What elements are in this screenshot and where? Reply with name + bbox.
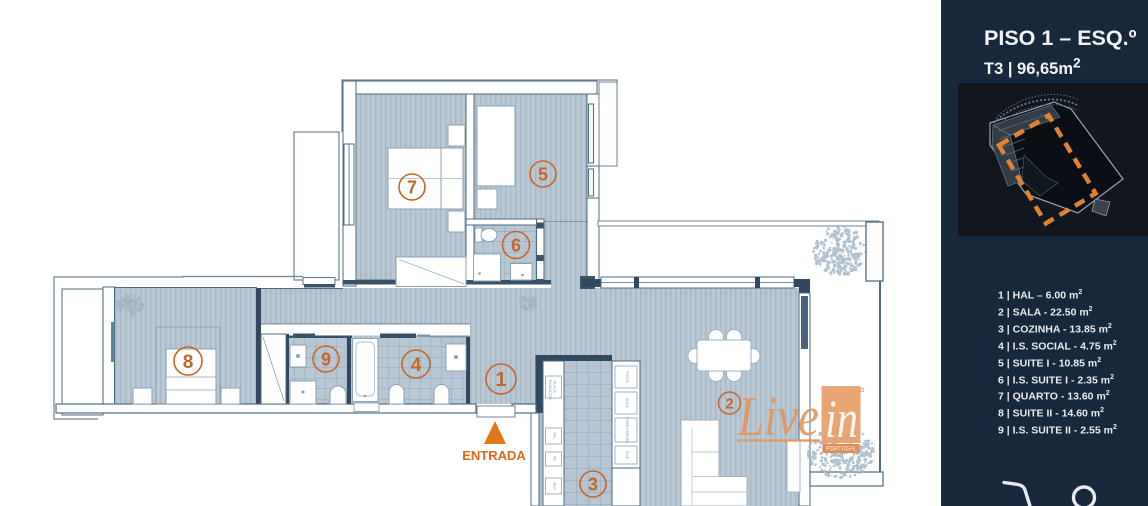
svg-text:DISP: DISP [625,451,629,460]
svg-text:7: 7 [407,178,417,198]
svg-text:5: 5 [538,165,548,185]
svg-text:9: 9 [321,350,331,370]
svg-text:FORNO MICRO: FORNO MICRO [625,417,629,443]
svg-text:MLL: MLL [553,433,557,440]
svg-text:ARCA: ARCA [625,398,629,409]
svg-text:PLACA: PLACA [553,381,557,393]
svg-text:6: 6 [511,236,521,256]
svg-text:1: 1 [495,369,506,391]
svg-text:ENTRADA: ENTRADA [462,448,526,463]
svg-text:EXAUSTOR: EXAUSTOR [548,380,552,400]
svg-text:PORTUGAL: PORTUGAL [826,447,858,453]
svg-text:MLR: MLR [553,482,557,490]
svg-text:8: 8 [183,352,194,373]
svg-text:Live: Live [737,386,819,448]
svg-text:in: in [825,389,858,449]
svg-text:FRIGO: FRIGO [625,371,629,383]
svg-text:2: 2 [725,396,733,413]
svg-text:ML: ML [553,457,557,462]
svg-text:3: 3 [588,475,598,495]
svg-text:4: 4 [411,355,422,376]
